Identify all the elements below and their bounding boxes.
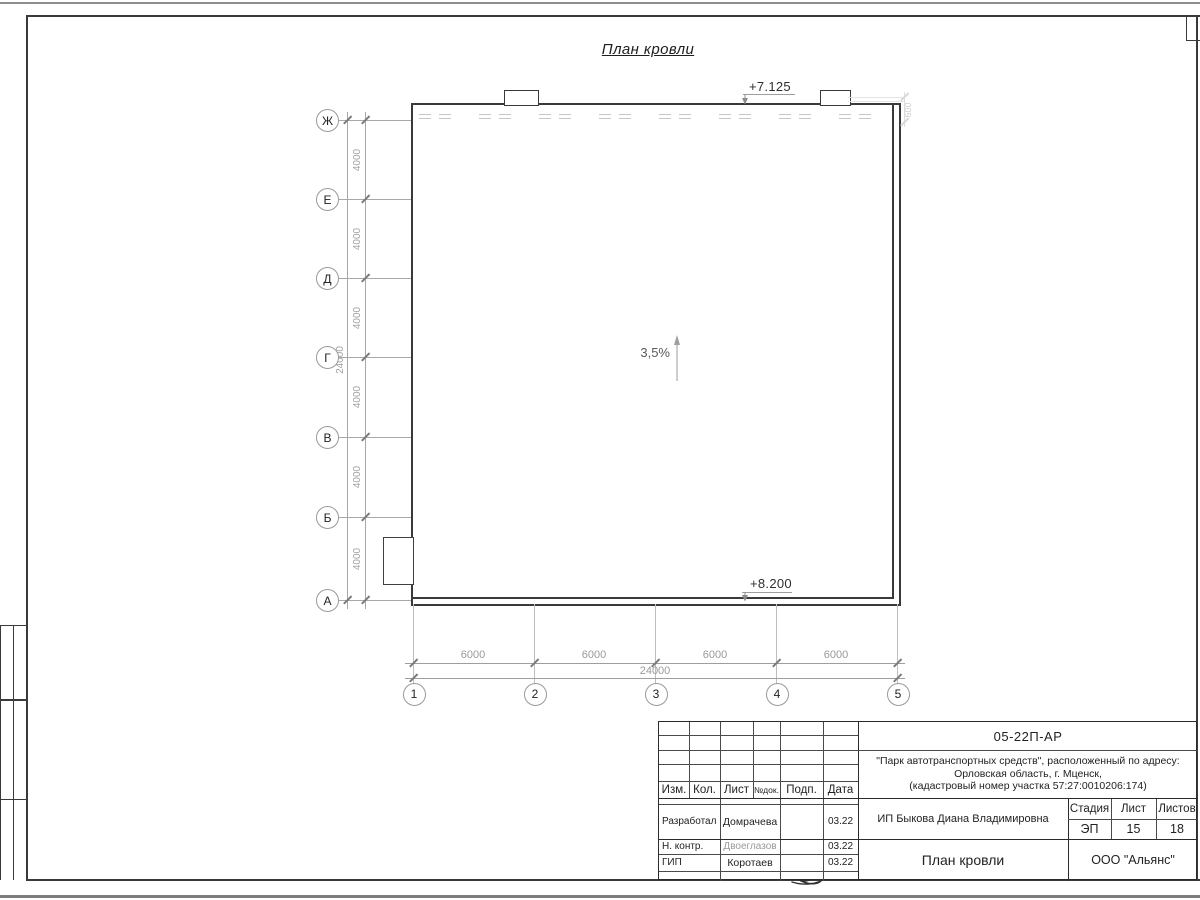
drawing-sheet: { "sheet": { "title": "План кровли" }, "…: [0, 0, 1200, 900]
elevation-top-arrow: [742, 94, 748, 105]
tb-line: [659, 735, 858, 736]
tb-header-ndok: №док.: [753, 781, 780, 798]
tb-name-gip: Коротаев: [720, 854, 780, 871]
tb-line: [659, 764, 858, 765]
tb-header-data: Дата: [823, 781, 858, 798]
tb-project-line1: "Парк автотранспортных средств", располо…: [876, 755, 1179, 768]
tb-sheet-value: 15: [1111, 819, 1156, 839]
tb-date-developer: 03.22: [823, 804, 858, 839]
tb-header-list: Лист: [720, 781, 753, 798]
tb-stage-value: ЭП: [1068, 819, 1111, 839]
tb-line: [659, 750, 858, 751]
tb-header-izm: Изм.: [659, 781, 689, 798]
tb-stage-label: Стадия: [1068, 798, 1111, 819]
tb-date-checker: 03.22: [823, 839, 858, 854]
slope-arrow: [674, 335, 680, 381]
tb-name-developer: Домрачева: [720, 804, 780, 839]
tb-doc-number: 05-22П-АР: [858, 722, 1198, 750]
tb-header-kol: Кол.: [689, 781, 720, 798]
tb-name-checker: Двоеглазов: [720, 839, 780, 854]
title-block: Изм. Кол. Лист №док. Подп. Дата Разработ…: [658, 721, 1197, 880]
tb-header-podp: Подп.: [780, 781, 823, 798]
tb-company: ООО "Альянс": [1068, 839, 1198, 881]
tb-project-description: "Парк автотранспортных средств", располо…: [858, 750, 1198, 798]
tb-date-gip: 03.22: [823, 854, 858, 871]
tb-line: [659, 871, 858, 872]
tb-drawing-title: План кровли: [858, 839, 1068, 881]
tb-role-developer: Разработал: [662, 804, 720, 839]
tb-sheet-label: Лист: [1111, 798, 1156, 819]
tb-sheets-value: 18: [1156, 819, 1198, 839]
tb-project-line3: (кадастровый номер участка 57:27:0010206…: [909, 780, 1146, 793]
tb-role-checker: Н. контр.: [662, 839, 720, 854]
tb-line: [780, 722, 781, 881]
tb-role-gip: ГИП: [662, 854, 720, 871]
tb-sheets-label: Листов: [1156, 798, 1198, 819]
elevation-bottom-arrow: [742, 592, 748, 602]
tb-project-line2: Орловская область, г. Мценск,: [954, 768, 1102, 781]
tb-client: ИП Быкова Диана Владимировна: [858, 798, 1068, 839]
